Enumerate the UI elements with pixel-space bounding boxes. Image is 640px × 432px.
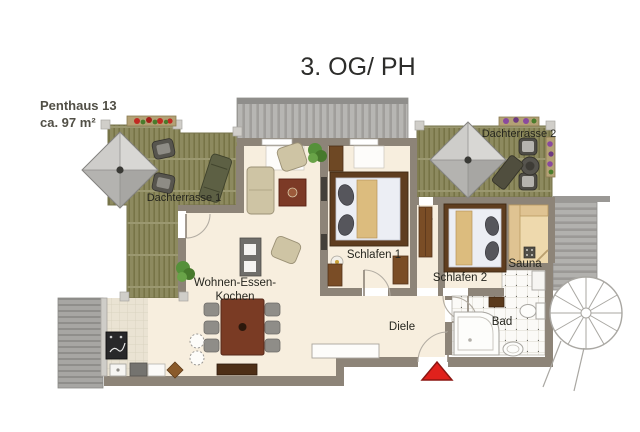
- label-terrace2: Dachterrasse 2: [482, 128, 557, 140]
- label-living-line1: Wohnen-Essen-: [194, 277, 276, 289]
- closet-panel: [321, 177, 327, 201]
- unit-name: Penthaus 13: [40, 98, 117, 113]
- label-terrace1: Dachterrasse 1: [147, 192, 222, 204]
- label-bedroom1: Schlafen 1: [347, 249, 401, 261]
- gray-deck: [58, 298, 103, 388]
- terrace2-chair: [519, 138, 537, 155]
- floorplan-page: 3. OG/ PH Penthaus 13 ca. 97 m² Dachterr…: [0, 0, 640, 432]
- toilet: [520, 303, 545, 319]
- label-bathroom: Bad: [492, 316, 512, 328]
- page-title: 3. OG/ PH: [300, 53, 415, 81]
- planter-flowers-red: [127, 116, 176, 126]
- stool: [489, 297, 504, 307]
- terrace2-table: [521, 157, 539, 175]
- corridor-wardrobe: [419, 207, 432, 257]
- wardrobe: [329, 146, 343, 171]
- dresser: [328, 264, 342, 286]
- bed-1: [330, 172, 408, 246]
- terrace1-chair: [151, 172, 175, 194]
- roof-right: [553, 196, 610, 290]
- terrace1-chair: [151, 138, 175, 160]
- kitchen-oven: [130, 363, 147, 376]
- hall-cabinet: [312, 344, 379, 358]
- shelf-unit: [240, 238, 261, 276]
- kitchen-stove: [106, 332, 127, 359]
- coffee-table: [279, 179, 306, 206]
- bed-2: [444, 204, 506, 272]
- roof-top: [237, 98, 408, 142]
- terrace2-chair: [519, 173, 537, 190]
- label-hallway: Diele: [389, 321, 415, 333]
- unit-area: ca. 97 m²: [40, 115, 96, 130]
- sauna-heater: [524, 247, 535, 258]
- closet-panel: [321, 234, 327, 250]
- kitchen-counter: [148, 364, 165, 376]
- label-bedroom2: Schlafen 2: [433, 272, 487, 284]
- sink: [503, 342, 523, 356]
- sideboard: [217, 364, 257, 375]
- floor-plan-canvas: 3. OG/ PH Penthaus 13 ca. 97 m² Dachterr…: [0, 0, 640, 432]
- label-sauna: Sauna: [508, 258, 542, 270]
- spiral-staircase: [543, 277, 622, 391]
- shower: [532, 271, 545, 290]
- label-living-line2: Kochen: [215, 291, 254, 303]
- sofa: [247, 167, 274, 214]
- kitchen-sink: [110, 364, 126, 376]
